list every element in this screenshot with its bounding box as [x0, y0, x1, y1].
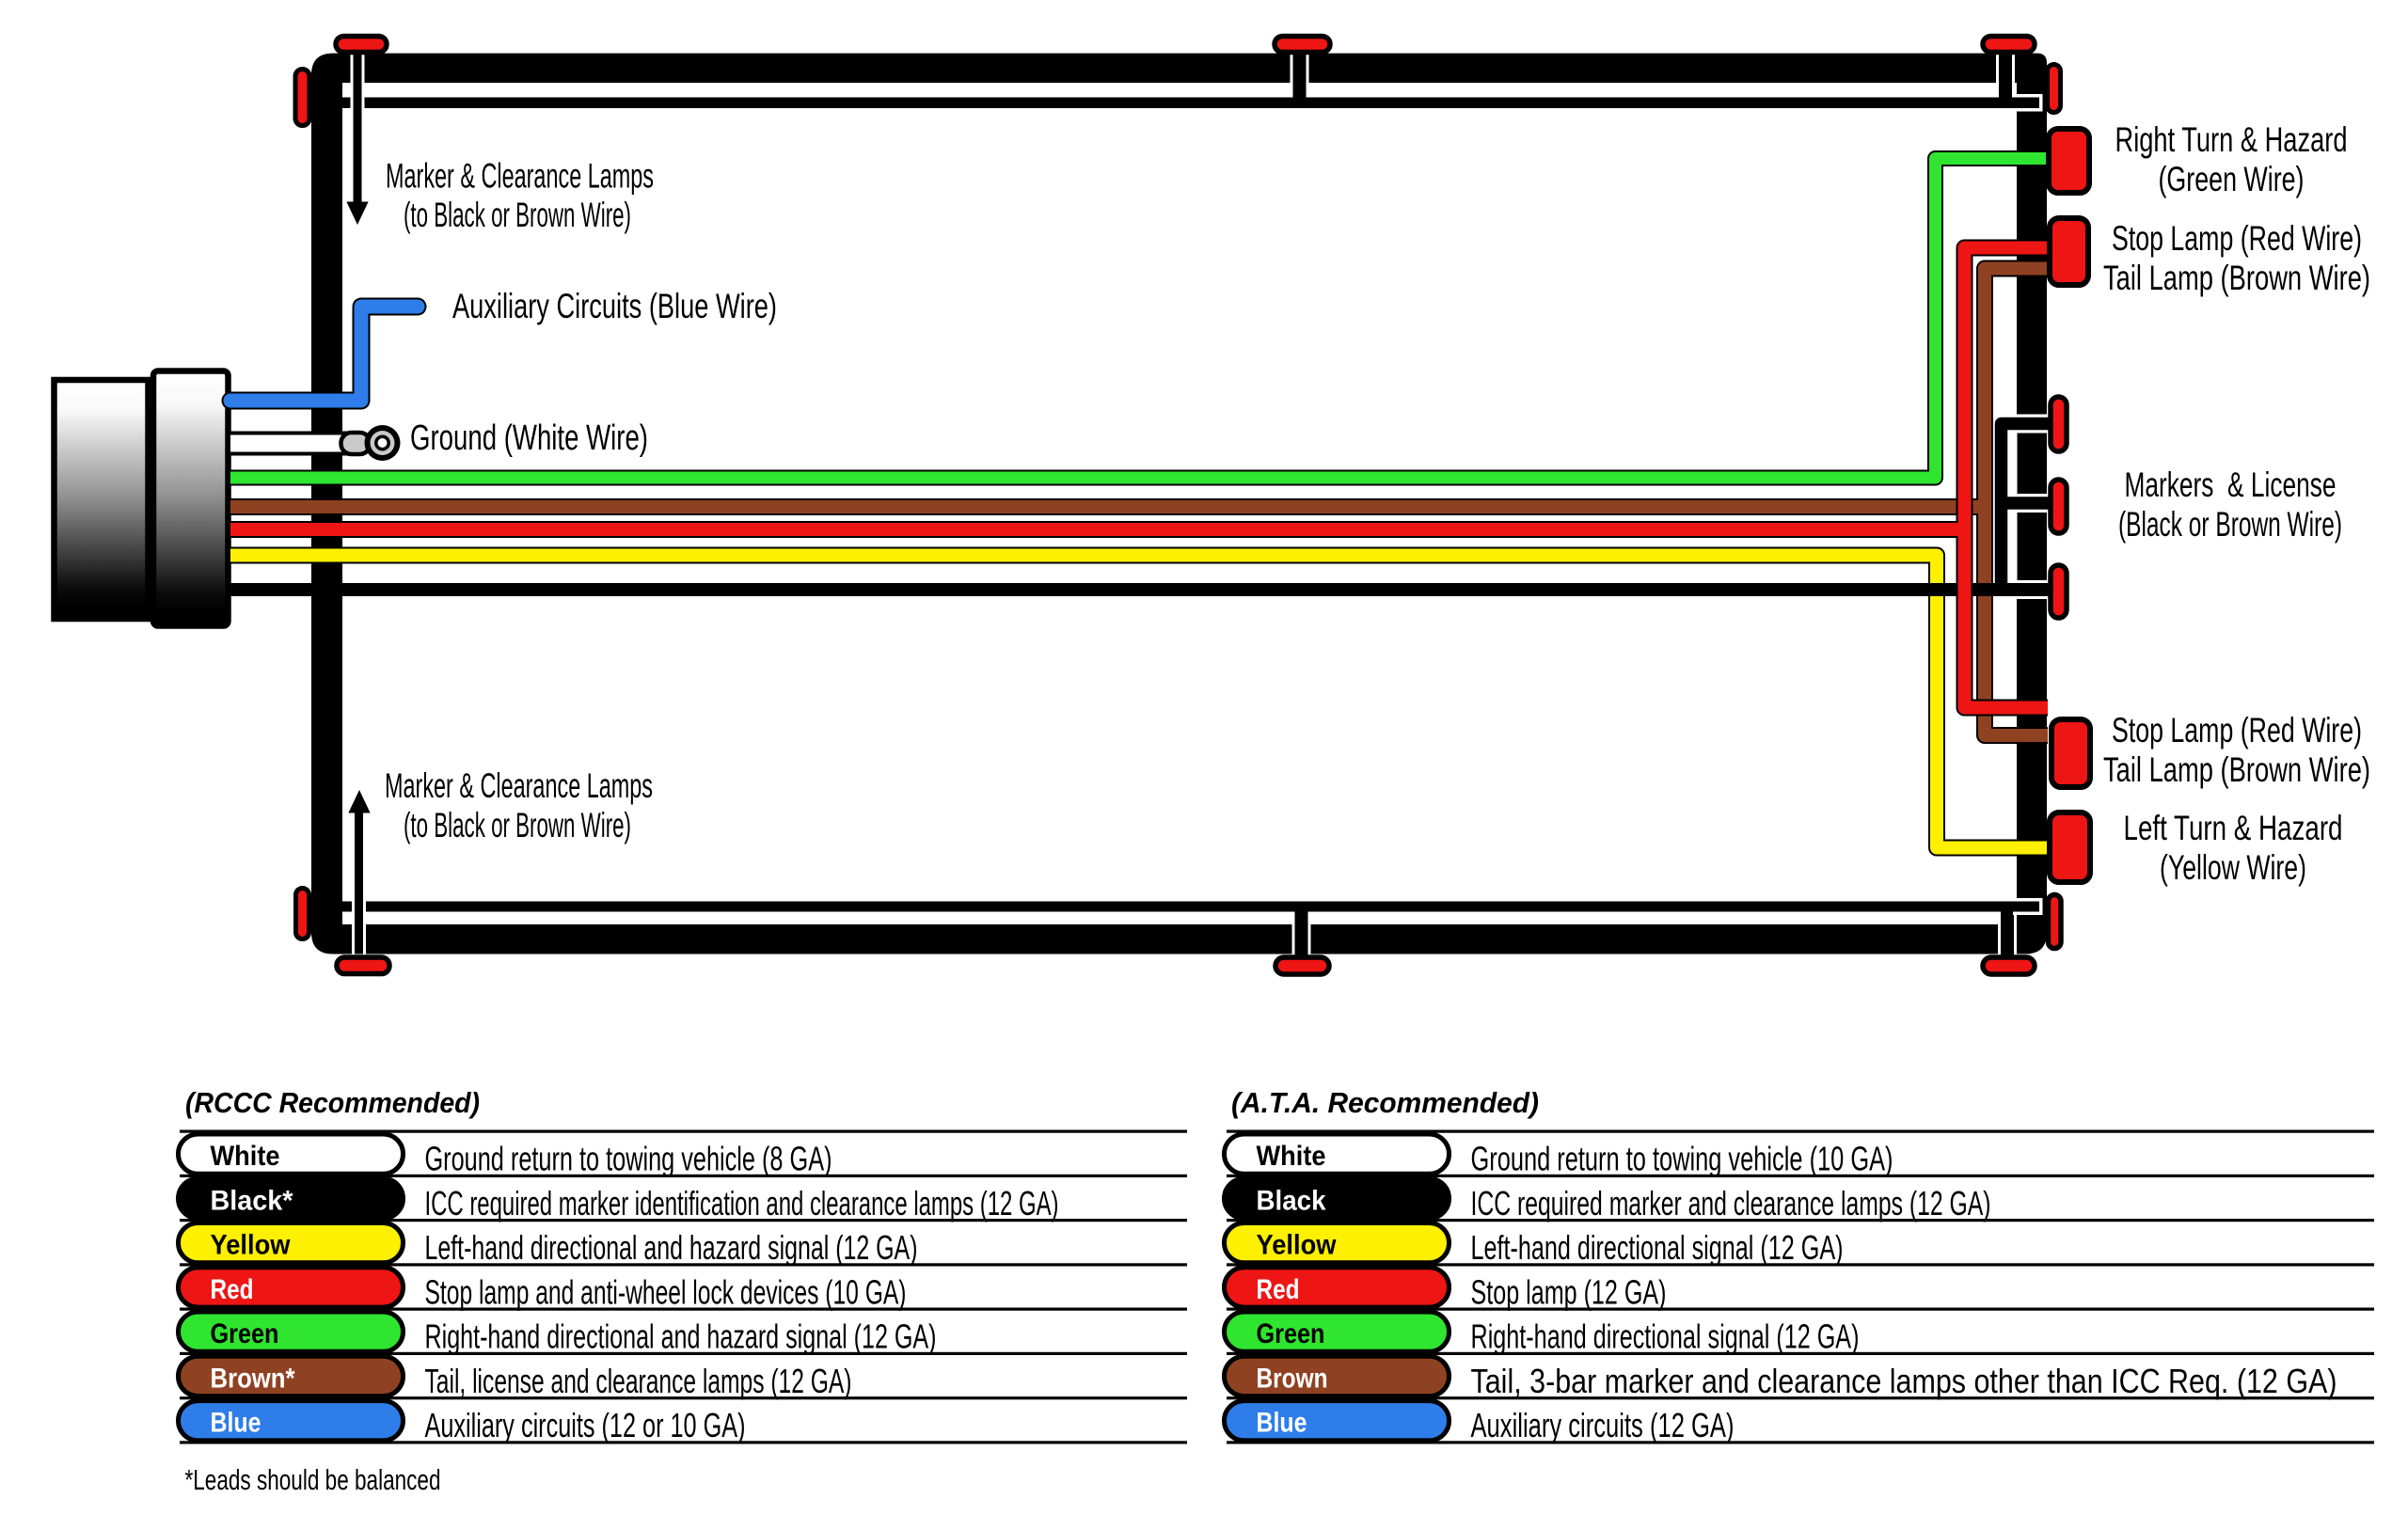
svg-text:Auxiliary Circuits (Blue Wire): Auxiliary Circuits (Blue Wire): [452, 287, 777, 325]
svg-text:(Green Wire): (Green Wire): [2159, 160, 2305, 198]
svg-text:Auxiliary circuits (12 or 10 G: Auxiliary circuits (12 or 10 GA): [425, 1406, 746, 1444]
svg-text:Brown*: Brown*: [211, 1363, 295, 1394]
svg-text:Tail, 3-bar marker and clearan: Tail, 3-bar marker and clearance lamps o…: [1471, 1362, 2337, 1400]
svg-text:(Black or Brown Wire): (Black or Brown Wire): [2118, 505, 2342, 544]
svg-text:Left-hand directional signal (: Left-hand directional signal (12 GA): [1471, 1228, 1844, 1267]
svg-text:Stop Lamp (Red Wire): Stop Lamp (Red Wire): [2112, 711, 2362, 749]
svg-text:Stop lamp and anti-wheel lock: Stop lamp and anti-wheel lock devices (1…: [425, 1272, 907, 1311]
svg-text:Right-hand directional signal: Right-hand directional signal (12 GA): [1471, 1317, 1860, 1356]
svg-text:Stop lamp (12 GA): Stop lamp (12 GA): [1471, 1272, 1667, 1311]
svg-text:Red: Red: [211, 1274, 254, 1305]
svg-text:Ground return to towing vehicl: Ground return to towing vehicle (8 GA): [425, 1140, 832, 1178]
svg-text:Left-hand directional and haza: Left-hand directional and hazard signal …: [425, 1228, 918, 1267]
svg-text:Auxiliary circuits (12 GA): Auxiliary circuits (12 GA): [1471, 1406, 1735, 1444]
svg-text:Marker & Clearance Lamps: Marker & Clearance Lamps: [386, 157, 654, 196]
svg-text:Green: Green: [1257, 1318, 1325, 1349]
svg-text:(Yellow Wire): (Yellow Wire): [2160, 848, 2306, 887]
svg-text:(RCCC Recommended): (RCCC Recommended): [185, 1086, 480, 1119]
svg-text:Black: Black: [1257, 1185, 1326, 1216]
svg-text:Ground return to towing vehicl: Ground return to towing vehicle (10 GA): [1471, 1140, 1893, 1178]
svg-text:Stop Lamp (Red Wire): Stop Lamp (Red Wire): [2112, 219, 2362, 258]
svg-text:Marker & Clearance Lamps: Marker & Clearance Lamps: [385, 766, 653, 805]
svg-text:White: White: [211, 1141, 280, 1172]
svg-text:Black*: Black*: [211, 1185, 293, 1216]
svg-text:Right Turn & Hazard: Right Turn & Hazard: [2115, 120, 2348, 159]
svg-text:White: White: [1257, 1141, 1326, 1172]
svg-text:Right-hand directional and haz: Right-hand directional and hazard signal…: [425, 1317, 937, 1356]
svg-text:(to Black or Brown Wire): (to Black or Brown Wire): [404, 806, 631, 844]
svg-text:Brown: Brown: [1257, 1363, 1328, 1394]
svg-text:Yellow: Yellow: [1257, 1230, 1338, 1261]
svg-text:(to Black or Brown Wire): (to Black or Brown Wire): [404, 196, 631, 234]
svg-text:Tail Lamp (Brown Wire): Tail Lamp (Brown Wire): [2103, 750, 2370, 789]
svg-text:Tail, license and clearance la: Tail, license and clearance lamps (12 GA…: [425, 1362, 852, 1400]
svg-text:Green: Green: [211, 1318, 279, 1349]
svg-text:*Leads should be balanced: *Leads should be balanced: [185, 1463, 441, 1496]
svg-text:Red: Red: [1257, 1274, 1300, 1305]
svg-text:Blue: Blue: [211, 1408, 261, 1439]
svg-text:Left Turn & Hazard: Left Turn & Hazard: [2124, 809, 2343, 847]
svg-text:Yellow: Yellow: [211, 1230, 292, 1261]
svg-text:Tail Lamp (Brown Wire): Tail Lamp (Brown Wire): [2103, 259, 2370, 297]
svg-text:Blue: Blue: [1257, 1408, 1307, 1439]
svg-text:(A.T.A. Recommended): (A.T.A. Recommended): [1231, 1086, 1539, 1119]
svg-text:ICC required marker identifica: ICC required marker identification and c…: [425, 1184, 1059, 1222]
svg-text:ICC required marker and cleara: ICC required marker and clearance lamps …: [1471, 1184, 1991, 1222]
svg-text:Markers & License: Markers & License: [2125, 465, 2337, 504]
svg-text:Ground (White Wire): Ground (White Wire): [410, 418, 648, 458]
